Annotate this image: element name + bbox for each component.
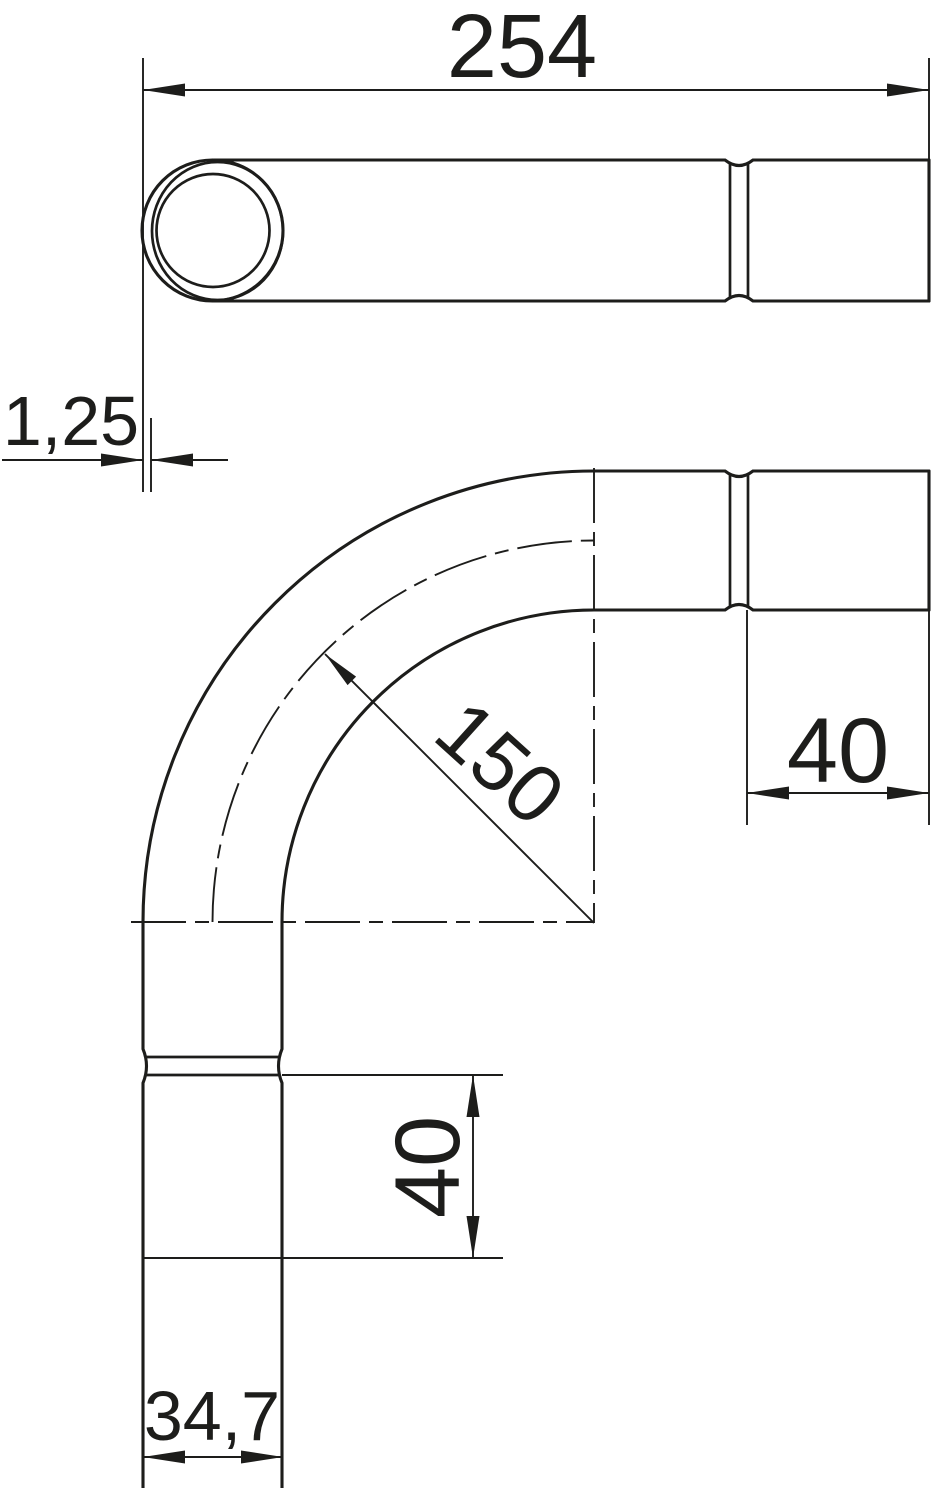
dim-text-socket-bottom: 40 xyxy=(377,1116,479,1218)
end-face-rim-ellipse xyxy=(152,162,283,300)
dimension-socket-right: 40 xyxy=(747,610,929,825)
leg-bottom-edge xyxy=(594,605,929,611)
dim-text-outer-diameter: 34,7 xyxy=(144,1377,280,1455)
dimension-bend-radius: 150 xyxy=(325,654,594,923)
arrowhead-left-icon xyxy=(143,84,185,97)
dimension-outer-diameter: 34,7 xyxy=(143,1377,283,1464)
arrowhead-right-icon xyxy=(151,454,193,467)
arrowhead-right-icon xyxy=(887,787,929,800)
dim-text-overall-length: 254 xyxy=(447,0,597,97)
arrowhead-up-icon xyxy=(467,1075,480,1117)
dimension-wall-thickness: 1,25 xyxy=(2,382,228,492)
pipe-bottom-edge xyxy=(214,296,929,302)
leg-top-edge xyxy=(594,471,929,477)
technical-drawing: 254 1,25 150 xyxy=(0,0,931,1488)
dim-text-socket-right: 40 xyxy=(787,700,889,802)
dimension-socket-bottom: 40 xyxy=(143,1075,503,1258)
dimension-overall-length: 254 xyxy=(143,0,929,492)
arrowhead-left-icon xyxy=(747,787,789,800)
front-view-bend xyxy=(131,468,929,1488)
arrowhead-down-icon xyxy=(467,1216,480,1258)
arrowhead-radius-icon xyxy=(325,654,356,685)
drawing-sheet: 254 1,25 150 xyxy=(0,0,931,1488)
end-face-bore-circle xyxy=(157,174,270,287)
dim-text-bend-radius: 150 xyxy=(418,684,581,843)
dim-text-wall-thickness: 1,25 xyxy=(3,382,139,460)
arrowhead-right-icon xyxy=(887,84,929,97)
top-view-pipe xyxy=(142,160,929,301)
pipe-top-edge xyxy=(214,160,929,166)
